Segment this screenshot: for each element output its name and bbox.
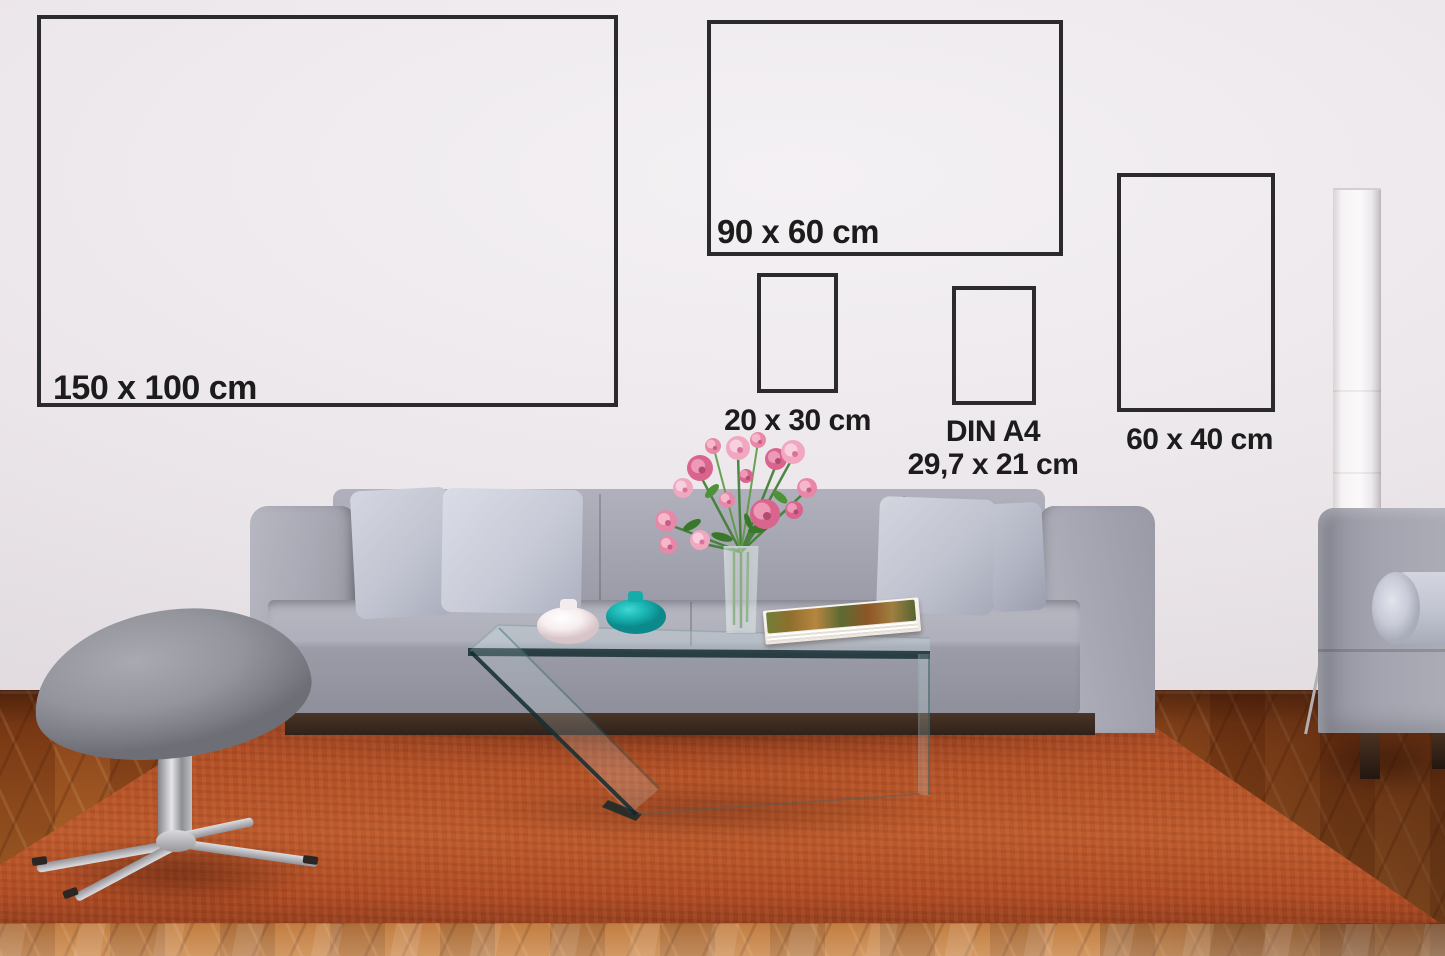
size-label-din-a4: DIN A4 29,7 x 21 cm [873, 415, 1113, 481]
white-vase-neck [560, 599, 577, 610]
size-label-150x100: 150 x 100 cm [53, 369, 257, 408]
size-label-din-a4-dimensions: 29,7 x 21 cm [873, 448, 1113, 481]
floor-lamp [1333, 188, 1381, 516]
side-sofa-seat-crease [1318, 649, 1445, 652]
size-frame-60x40 [1117, 173, 1275, 412]
floor-gloss [0, 924, 1445, 956]
flower-vase [722, 546, 760, 634]
side-sofa-bolster-cap [1372, 572, 1420, 644]
white-vase [537, 607, 599, 644]
teal-vase [606, 599, 666, 634]
lamp-panel-seam [1333, 390, 1381, 392]
size-label-60x40: 60 x 40 cm [1092, 423, 1307, 457]
lamp-panel-seam [1333, 472, 1381, 474]
size-frame-din-a4 [952, 286, 1036, 405]
teal-vase-neck [628, 591, 643, 602]
sofa-pillow [987, 502, 1047, 613]
ottoman-hub [156, 830, 196, 852]
side-sofa-leg [1432, 733, 1445, 769]
living-room-scene: 150 x 100 cm 90 x 60 cm 20 x 30 cm DIN A… [0, 0, 1445, 956]
table-leg-right [638, 654, 930, 814]
size-frame-20x30 [757, 273, 838, 393]
side-sofa-leg [1360, 733, 1380, 779]
size-label-90x60: 90 x 60 cm [717, 213, 879, 251]
size-label-din-a4-title: DIN A4 [873, 415, 1113, 448]
size-frame-150x100 [37, 15, 618, 407]
